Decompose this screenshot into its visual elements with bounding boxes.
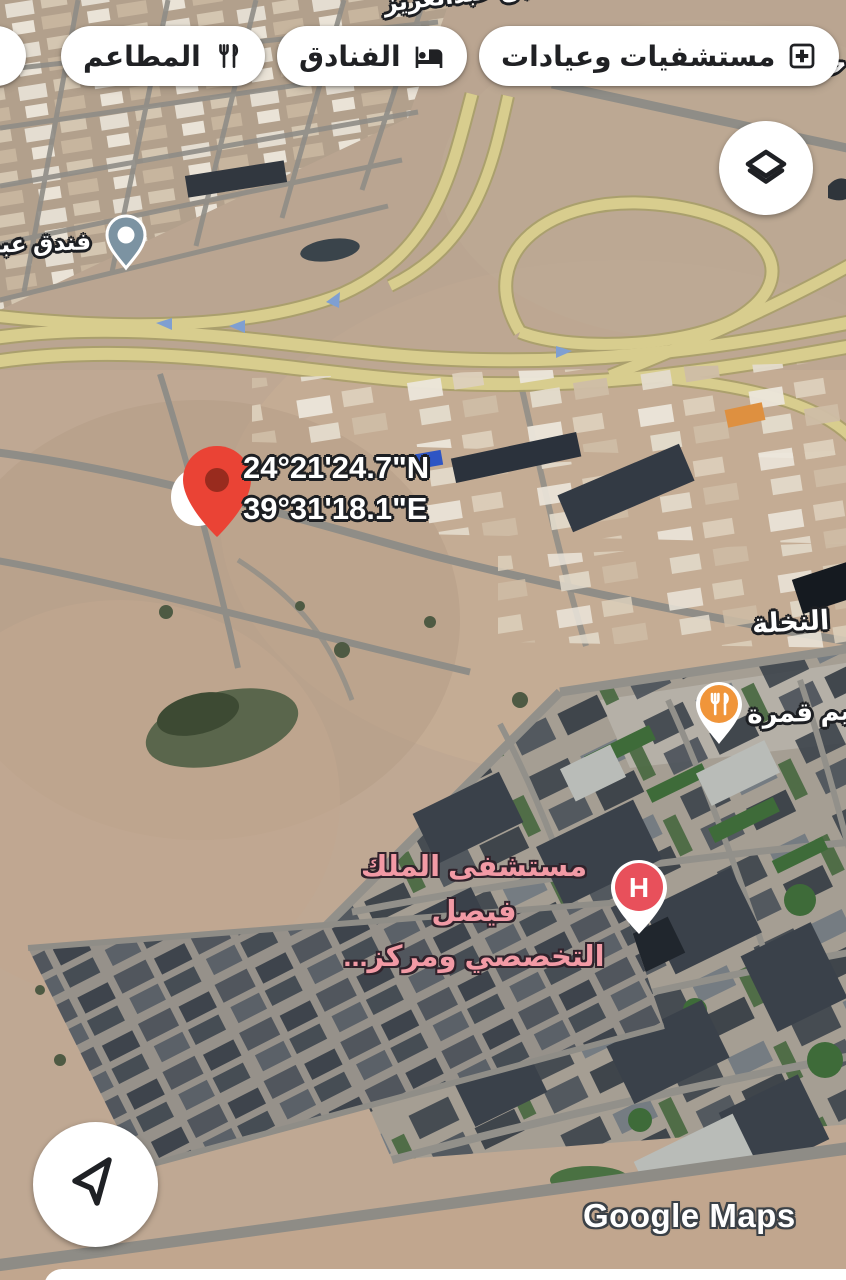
hospital-marker[interactable]: H [609, 858, 669, 941]
hospital-pin-icon: H [609, 858, 669, 936]
hospital-pin-letter: H [629, 872, 649, 903]
hospital-cross-icon [787, 41, 817, 71]
chip-restaurants[interactable]: المطاعم [61, 26, 265, 86]
compass-button[interactable] [33, 1122, 158, 1247]
hotel-marker-label[interactable]: فندق عبد [0, 228, 92, 259]
dropped-pin-coordinates: 24°21'24.7"N 39°31'18.1"E [243, 447, 429, 529]
google-maps-watermark: Google Maps [583, 1197, 796, 1235]
chip-hospitals[interactable]: مستشفيات وعيادات [479, 26, 839, 86]
bottom-sheet-handle[interactable] [44, 1269, 846, 1280]
hotel-marker[interactable] [104, 214, 148, 277]
chip-hotels[interactable]: الفنادق [277, 26, 467, 86]
hotel-pin-icon [104, 214, 148, 272]
chip-hotels-label: الفنادق [299, 40, 401, 73]
coordinates-lng: 39°31'18.1"E [243, 488, 429, 529]
restaurant-icon [213, 41, 243, 71]
chip-restaurants-label: المطاعم [83, 40, 201, 73]
district-label[interactable]: النخلة [751, 605, 830, 640]
restaurant-pin-icon [694, 681, 744, 745]
restaurant-marker[interactable] [694, 681, 744, 750]
chip-hospitals-label: مستشفيات وعيادات [501, 40, 775, 73]
hospital-marker-label[interactable]: مستشفى الملك فيصل التخصصي ومركز... [340, 845, 608, 980]
layers-icon [742, 144, 790, 192]
satellite-terrain [0, 0, 846, 1280]
google-maps-satellite-view[interactable]: طريق الأمير نايف بن عبدالعزيز حه المطاعم… [0, 0, 846, 1280]
restaurant-marker-label[interactable]: ميم قمرة [746, 695, 846, 730]
hospital-label-line2: التخصصي ومركز... [340, 935, 608, 980]
layers-button[interactable] [719, 121, 813, 215]
coordinates-lat: 24°21'24.7"N [243, 447, 429, 488]
bed-icon [413, 40, 445, 72]
hospital-label-line1: مستشفى الملك فيصل [340, 845, 608, 935]
navigation-arrow-icon [33, 1122, 158, 1247]
